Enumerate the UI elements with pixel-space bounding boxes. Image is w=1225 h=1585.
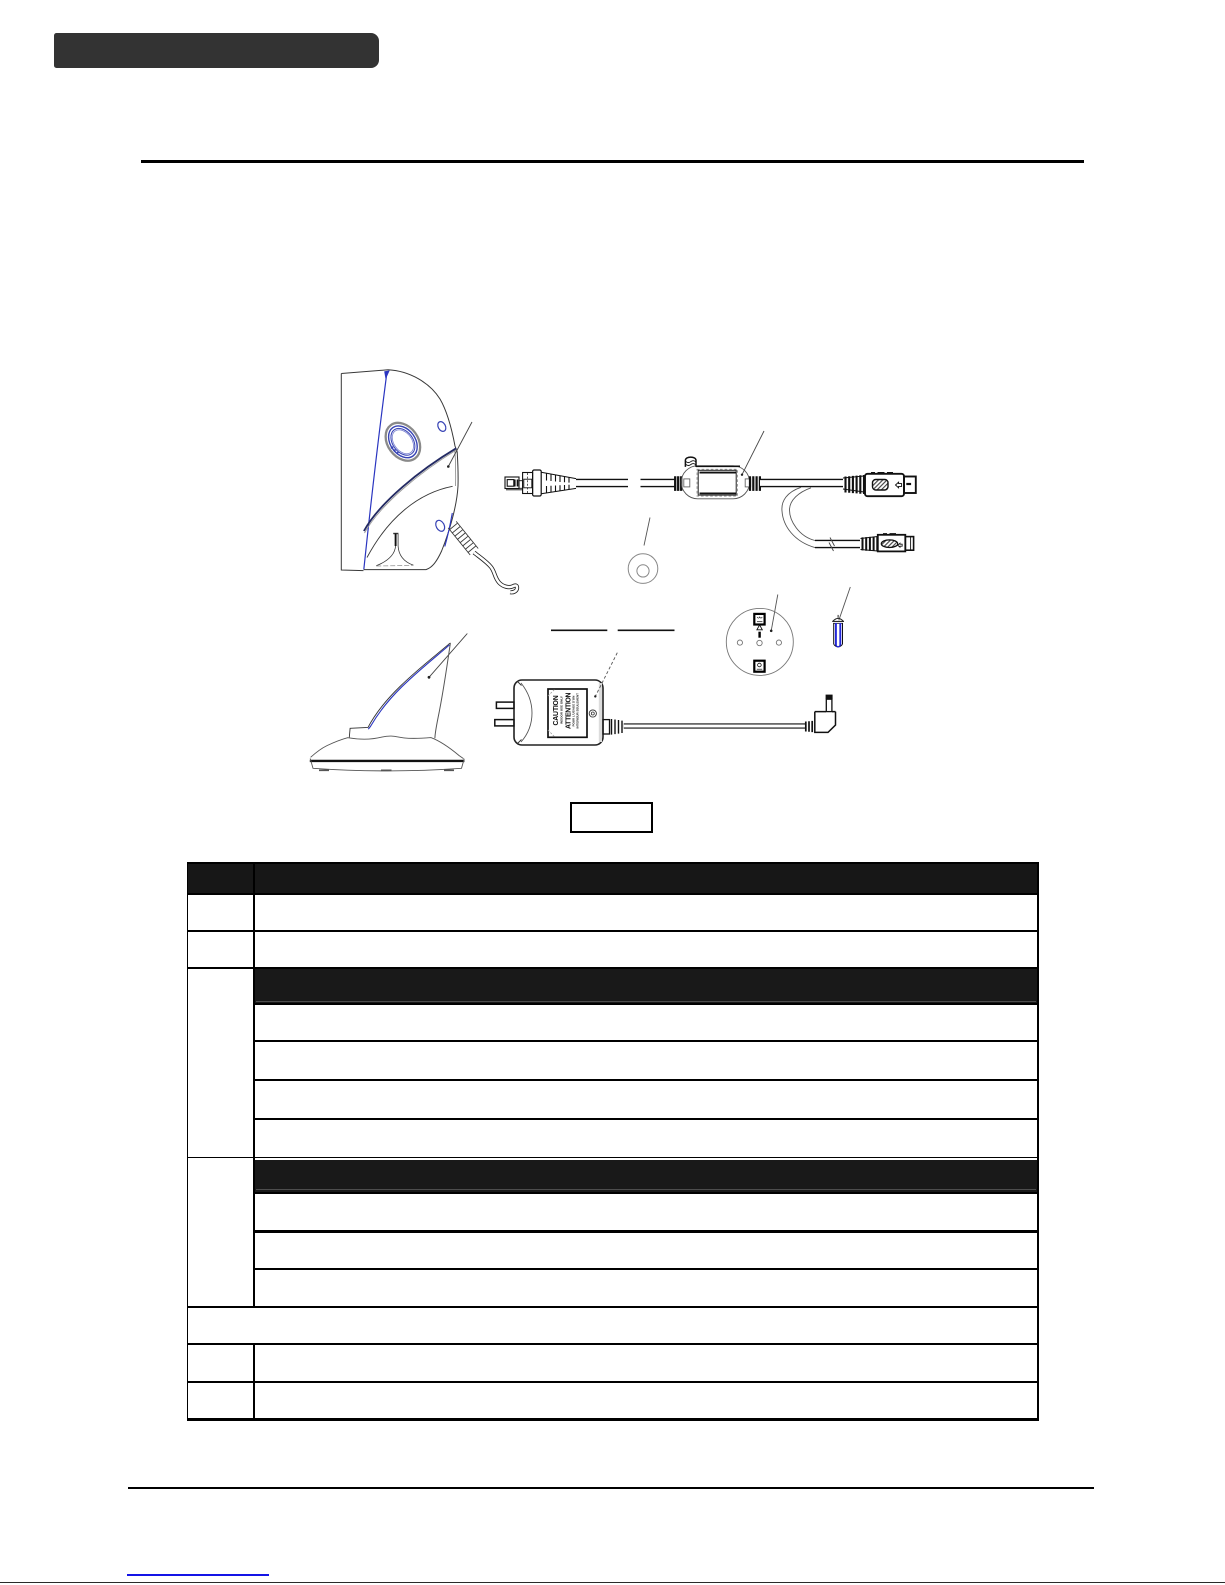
svg-text:INTERIEUR SEULEMENT: INTERIEUR SEULEMENT bbox=[575, 693, 579, 729]
svg-text:INDOOR USE ONLY: INDOOR USE ONLY bbox=[560, 696, 564, 724]
